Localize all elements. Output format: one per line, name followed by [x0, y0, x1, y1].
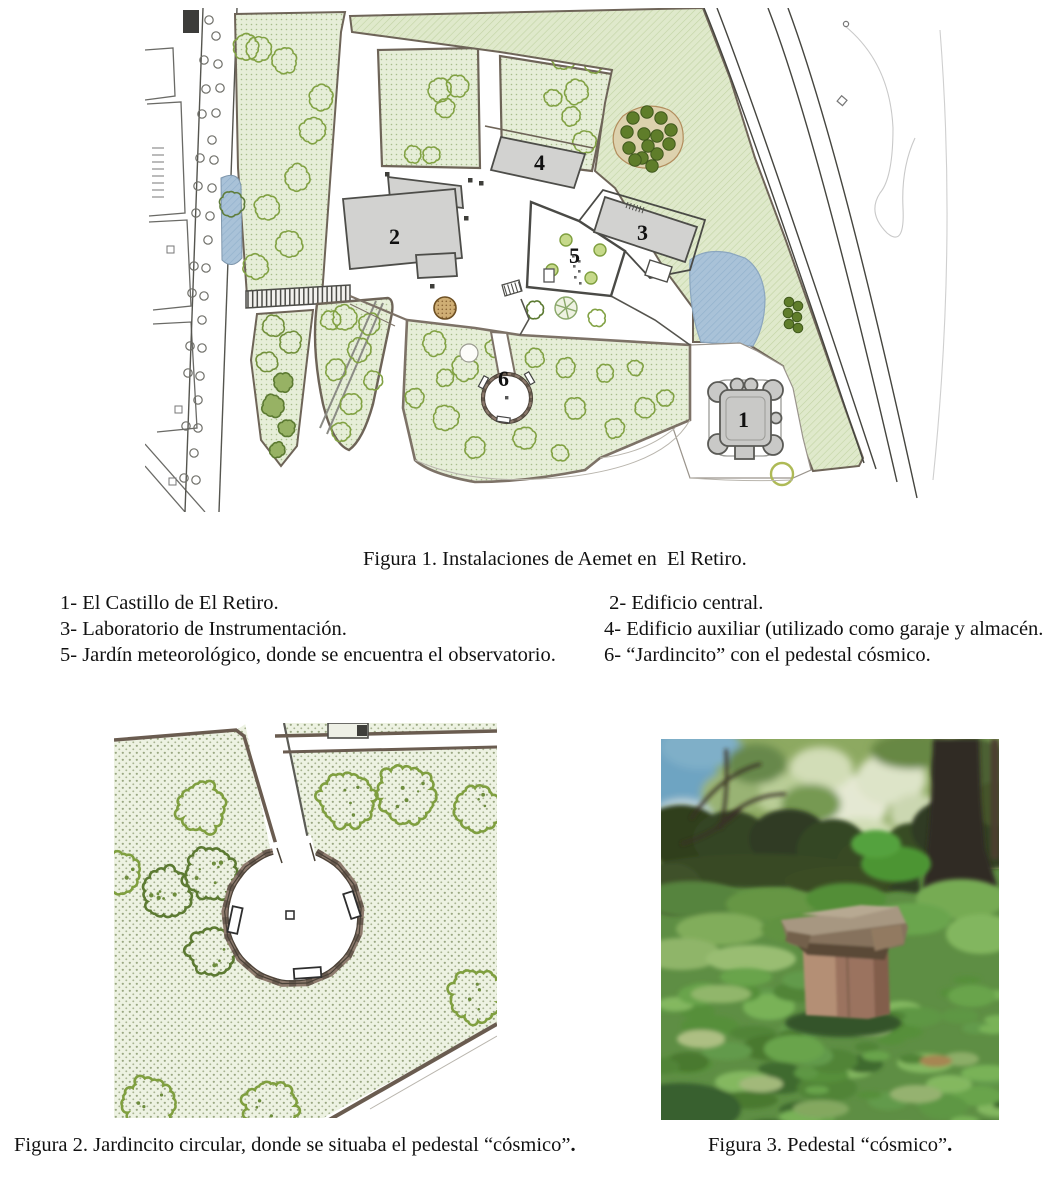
- svg-text:1: 1: [738, 407, 749, 432]
- svg-text:2: 2: [389, 224, 400, 249]
- svg-text:3: 3: [637, 220, 648, 245]
- svg-text:5: 5: [569, 243, 580, 268]
- svg-text:4: 4: [534, 150, 545, 175]
- svg-text:6: 6: [498, 366, 509, 391]
